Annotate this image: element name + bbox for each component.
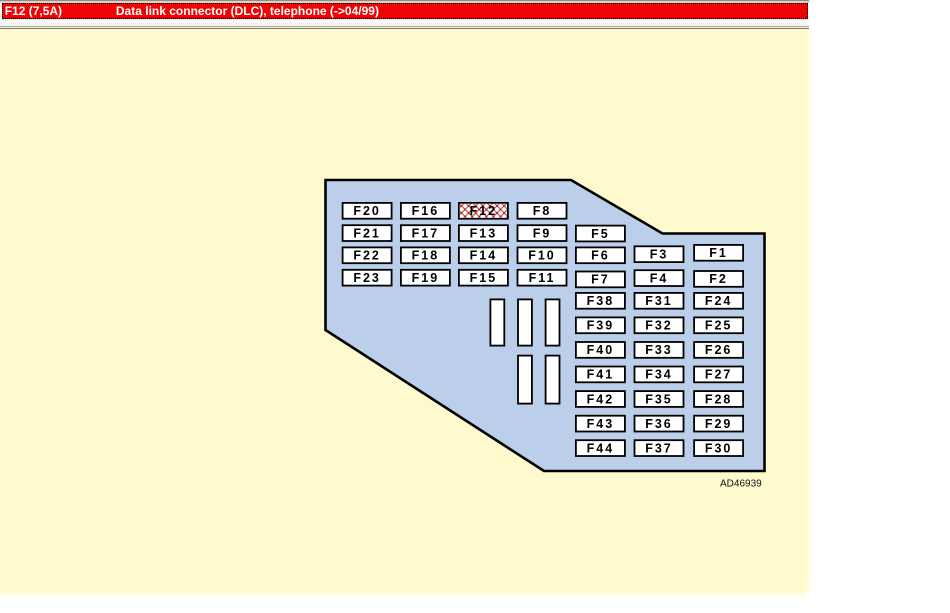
svg-text:F15: F15 [470,271,498,285]
svg-text:F41: F41 [587,368,615,382]
svg-text:F28: F28 [705,392,733,406]
svg-text:F4: F4 [650,271,669,285]
svg-text:F26: F26 [705,343,733,357]
svg-text:F10: F10 [528,249,556,263]
svg-text:F5: F5 [591,227,610,241]
svg-text:F20: F20 [353,204,381,218]
svg-text:F25: F25 [705,319,733,333]
svg-text:F1: F1 [709,246,728,260]
svg-text:F23: F23 [353,271,381,285]
svg-text:AD46939: AD46939 [720,479,762,490]
svg-text:F31: F31 [645,294,673,308]
svg-text:F35: F35 [645,392,673,406]
svg-text:F39: F39 [587,319,615,333]
svg-text:F42: F42 [587,392,615,406]
svg-text:F13: F13 [470,226,498,240]
svg-text:F27: F27 [705,368,733,382]
svg-text:F22: F22 [353,249,381,263]
svg-text:F37: F37 [645,441,673,455]
svg-text:F21: F21 [353,226,381,240]
svg-text:F40: F40 [587,343,615,357]
svg-text:F33: F33 [645,343,673,357]
svg-text:F9: F9 [533,226,552,240]
svg-text:F8: F8 [533,204,552,218]
svg-text:F6: F6 [591,249,610,263]
svg-text:F43: F43 [587,417,615,431]
svg-text:F12: F12 [470,204,498,218]
svg-text:F14: F14 [470,249,498,263]
svg-text:F30: F30 [705,441,733,455]
svg-text:F38: F38 [587,294,615,308]
svg-text:F32: F32 [645,319,673,333]
svg-text:F3: F3 [650,248,669,262]
svg-text:F44: F44 [587,441,615,455]
svg-text:F24: F24 [705,294,733,308]
svg-text:F29: F29 [705,417,733,431]
svg-text:F17: F17 [412,226,440,240]
svg-text:F7: F7 [591,273,610,287]
svg-text:F34: F34 [645,368,673,382]
svg-text:F16: F16 [412,204,440,218]
svg-text:F36: F36 [645,417,673,431]
svg-text:F19: F19 [412,271,440,285]
svg-text:F18: F18 [412,249,440,263]
svg-text:F11: F11 [529,271,556,285]
svg-text:F2: F2 [709,272,728,286]
